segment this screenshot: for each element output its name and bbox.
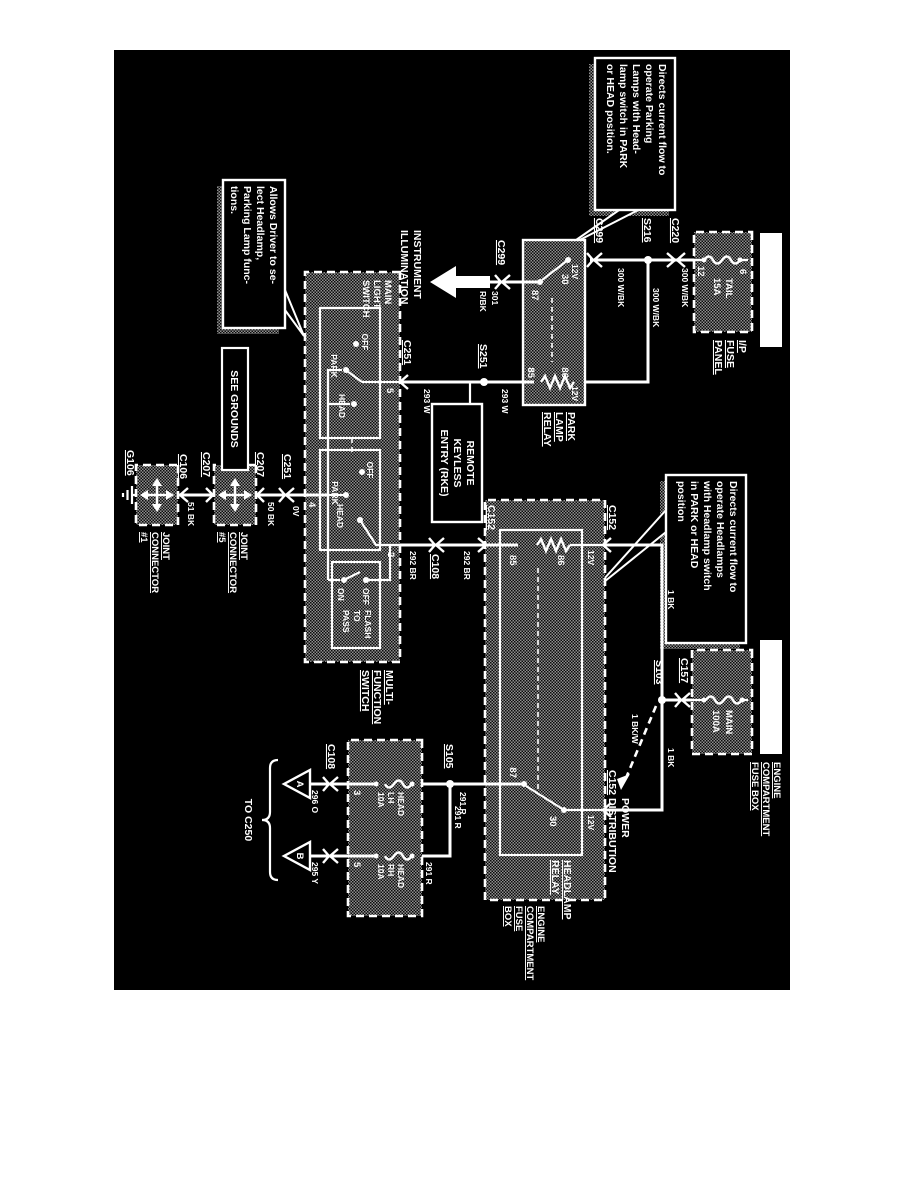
svg-text:C207: C207 xyxy=(200,452,212,477)
svg-text:or HEAD position.: or HEAD position. xyxy=(604,64,616,154)
wire-296-o: 296 O xyxy=(310,790,320,814)
hot-at-all-times-label: HOT AT ALL TIMES xyxy=(764,649,776,745)
connector-c299: C299 xyxy=(593,218,605,243)
svg-text:operate Headlamps: operate Headlamps xyxy=(714,481,726,578)
svg-text:292 BR: 292 BR xyxy=(408,551,418,580)
wire-300-wbk: 300 W/BK xyxy=(680,268,690,308)
pin-85: 85 xyxy=(525,367,536,378)
svg-text:1 BK: 1 BK xyxy=(666,748,676,768)
svg-text:FUNCTION: FUNCTION xyxy=(371,670,383,724)
label-0v: 0V xyxy=(291,506,301,517)
wire-292-br: 292 BR xyxy=(462,551,472,580)
wire-50-bk: 50 BK xyxy=(266,502,276,527)
callout-text: Directs current flow to xyxy=(656,64,668,175)
svg-text:10A: 10A xyxy=(376,792,386,808)
svg-text:BOX: BOX xyxy=(502,906,513,927)
svg-text:#5: #5 xyxy=(216,532,227,543)
svg-text:operate Parking: operate Parking xyxy=(643,64,655,143)
splice-s251: S251 xyxy=(477,344,489,369)
wire-301: 301 xyxy=(490,291,500,305)
ground-chain: 0V C251 50 BK C207 JOINT CONNECTOR #5 C2… xyxy=(123,348,328,593)
connector-c220: C220 xyxy=(669,218,681,243)
pin-85: 85 xyxy=(507,555,518,566)
callout-park-lamps: Directs current flow to operate Parking … xyxy=(566,58,675,247)
label-12v: 12V xyxy=(570,264,580,279)
pin-30: 30 xyxy=(547,816,558,827)
pin-6: 6 xyxy=(737,269,748,274)
head-fuses-box xyxy=(348,740,422,916)
svg-text:TAIL: TAIL xyxy=(723,278,734,299)
svg-text:HEAD: HEAD xyxy=(396,792,406,816)
svg-text:KEYLESS: KEYLESS xyxy=(451,438,463,487)
svg-text:C152: C152 xyxy=(485,505,497,530)
svg-text:COMPARTMENT: COMPARTMENT xyxy=(760,762,771,836)
svg-text:lamp switch in PARK: lamp switch in PARK xyxy=(617,64,629,169)
wire-295-y: 295 Y xyxy=(310,862,320,884)
svg-text:C152: C152 xyxy=(606,770,618,795)
svg-text:#1: #1 xyxy=(138,532,149,543)
circuit-293-w: 293 W S251 293 W REMOTE KEYLESS ENTRY (R… xyxy=(400,340,534,522)
svg-text:RELAY: RELAY xyxy=(541,412,553,447)
svg-text:LAMP: LAMP xyxy=(553,412,565,442)
svg-text:CONNECTOR: CONNECTOR xyxy=(227,532,238,593)
pin-30: 30 xyxy=(559,274,570,285)
connector-c108: C108 xyxy=(429,554,441,579)
svg-text:C299: C299 xyxy=(495,240,507,265)
svg-text:300 W/BK: 300 W/BK xyxy=(616,268,626,308)
engine-fuse-box-label: ENGINE xyxy=(535,906,546,942)
diagram-black-canvas: Directs current flow to operate Parking … xyxy=(114,50,790,990)
rke-label: REMOTE xyxy=(464,441,476,486)
ip-fuse-panel-label: I/P xyxy=(736,340,748,353)
arrow-head xyxy=(617,774,630,790)
svg-text:293 W: 293 W xyxy=(422,389,432,415)
wire-293-w: 293 W xyxy=(500,389,510,415)
svg-text:in PARK or HEAD: in PARK or HEAD xyxy=(688,481,700,569)
joint-connector-1-label: JOINT xyxy=(160,532,171,560)
svg-text:lect Headlamp,: lect Headlamp, xyxy=(254,186,266,260)
svg-text:Parking Lamp func-: Parking Lamp func- xyxy=(241,186,253,285)
connector-c251: C251 xyxy=(401,340,413,365)
main-light-switch-label: MAIN xyxy=(382,280,393,304)
wiring-diagram-rotated: Directs current flow to operate Parking … xyxy=(114,50,790,990)
svg-text:FUSE: FUSE xyxy=(724,340,736,368)
callout-headlamps: Directs current flow to operate Headlamp… xyxy=(594,475,746,649)
svg-text:MAIN: MAIN xyxy=(723,710,734,734)
svg-text:SWITCH: SWITCH xyxy=(359,670,371,711)
pin-5: 5 xyxy=(351,862,362,868)
splice-s216: S216 xyxy=(641,218,653,243)
svg-text:A: A xyxy=(294,781,305,788)
svg-text:291 R: 291 R xyxy=(424,862,434,885)
svg-text:12V: 12V xyxy=(586,815,596,830)
engine-fuse-box-label: ENGINE xyxy=(771,762,782,798)
callout-driver: Allows Driver to se- lect Headlamp, Park… xyxy=(217,180,304,336)
svg-text:12V: 12V xyxy=(570,386,580,401)
hot-at-all-times-label: HOT AT ALL TIMES xyxy=(764,242,776,338)
svg-text:R/BK: R/BK xyxy=(478,291,488,313)
to-c250-label: TO C250 xyxy=(242,799,254,842)
svg-text:HEAD: HEAD xyxy=(335,504,345,528)
svg-text:10A: 10A xyxy=(376,864,386,880)
pin-87: 87 xyxy=(529,290,540,301)
position-on: ON xyxy=(336,588,346,601)
svg-text:FUSE BOX: FUSE BOX xyxy=(749,762,760,811)
svg-text:15A: 15A xyxy=(711,278,722,296)
pin-12: 12 xyxy=(695,266,706,277)
pin-4: 4 xyxy=(306,502,317,508)
wire-1-bk: 1 BK xyxy=(666,590,676,610)
wire-1-bkw: 1 BK/W xyxy=(630,714,640,745)
headlamp-feed-circuit: 291 R S105 291 R 291 R HEAD LH 10A HEAD … xyxy=(242,740,524,916)
wire-51-bk: 51 BK xyxy=(186,502,196,527)
mfs-label: MULTI- xyxy=(383,670,395,705)
circuit-301-instrument-illumination: C299 301 R/BK INSTRUMENT ILLUMINATION xyxy=(398,230,540,313)
power-distribution-label: POWER xyxy=(619,798,631,838)
svg-text:300 W/BK: 300 W/BK xyxy=(651,288,661,328)
svg-text:RELAY: RELAY xyxy=(549,860,561,895)
svg-text:291 R: 291 R xyxy=(453,806,463,829)
flash-to-pass-label: FLASH xyxy=(363,610,373,638)
position-park: PARK xyxy=(329,354,339,378)
pin-86: 86 xyxy=(555,555,566,566)
svg-text:SWITCH: SWITCH xyxy=(360,280,371,318)
svg-text:LIGHT: LIGHT xyxy=(371,280,382,309)
see-grounds-label: SEE GROUNDS xyxy=(228,370,240,448)
connector-c157: C157 xyxy=(678,658,690,683)
svg-text:RH: RH xyxy=(386,864,396,876)
svg-text:PARK: PARK xyxy=(330,481,340,505)
svg-text:12V: 12V xyxy=(586,550,596,565)
svg-text:COMPARTMENT: COMPARTMENT xyxy=(524,906,535,980)
connector-c152: C152 xyxy=(606,505,618,530)
pin-86: 86 xyxy=(559,367,570,378)
svg-text:HEAD: HEAD xyxy=(396,864,406,888)
pin-5: 5 xyxy=(384,388,395,394)
splice-s105: S105 xyxy=(443,744,455,769)
circuit-300-wbk: C220 300 W/BK S216 300 W/BK C299 300 W/B… xyxy=(585,218,694,382)
svg-text:TO: TO xyxy=(352,610,362,622)
park-lamp-relay-label: PARK xyxy=(565,412,577,441)
callout-pointer xyxy=(285,290,304,336)
position-off: OFF xyxy=(360,334,370,351)
joint-connector-5-label: JOINT xyxy=(238,532,249,560)
svg-text:PASS: PASS xyxy=(341,610,351,633)
svg-text:100A: 100A xyxy=(710,710,721,733)
multi-function-switch: MAIN LIGHT SWITCH 5 OFF PARK HEAD OFF PA… xyxy=(305,272,400,724)
svg-text:PANEL: PANEL xyxy=(712,340,724,375)
engine-fuse-box-relay: C152 C152 12V 12V 86 85 30 87 HEADLAMP R… xyxy=(400,500,618,980)
brace xyxy=(262,760,278,880)
svg-text:C251: C251 xyxy=(281,454,293,479)
ground-g106: G106 xyxy=(124,450,136,476)
callout-text: Allows Driver to se- xyxy=(267,186,279,285)
svg-text:DISTRIBUTION: DISTRIBUTION xyxy=(606,798,618,873)
svg-text:OFF: OFF xyxy=(361,588,371,605)
svg-text:tions.: tions. xyxy=(228,186,240,214)
instrument-illumination-label: INSTRUMENT xyxy=(411,230,423,299)
svg-text:ENTRY (RKE): ENTRY (RKE) xyxy=(438,429,450,496)
svg-text:with Headlamp switch: with Headlamp switch xyxy=(701,480,713,591)
callout-text: Directs current flow to xyxy=(727,481,739,592)
scanned-wiring-diagram-page: Directs current flow to operate Parking … xyxy=(0,0,918,1188)
splice-s251-symbol xyxy=(480,378,488,386)
svg-text:OFF: OFF xyxy=(365,462,375,479)
svg-text:C108: C108 xyxy=(325,744,337,769)
pin-87: 87 xyxy=(507,767,518,778)
pin-3: 3 xyxy=(351,790,362,795)
ip-fuse-panel: HOT AT ALL TIMES 6 12 TAIL 15A I/P FUSE … xyxy=(694,232,782,375)
svg-text:position: position xyxy=(675,481,687,522)
svg-text:FUSE: FUSE xyxy=(513,906,524,931)
ground-symbol-g106 xyxy=(123,486,136,504)
svg-text:CONNECTOR: CONNECTOR xyxy=(149,532,160,593)
svg-text:Lamps with Head-: Lamps with Head- xyxy=(630,64,642,154)
svg-text:B: B xyxy=(294,853,305,860)
park-lamp-relay: 12V 30 87 12V 86 85 PARK LAMP RELAY xyxy=(523,240,585,447)
headlamp-relay-label: HEADLAMP xyxy=(561,860,573,920)
svg-text:LH: LH xyxy=(386,792,396,803)
position-head: HEAD xyxy=(337,394,347,418)
